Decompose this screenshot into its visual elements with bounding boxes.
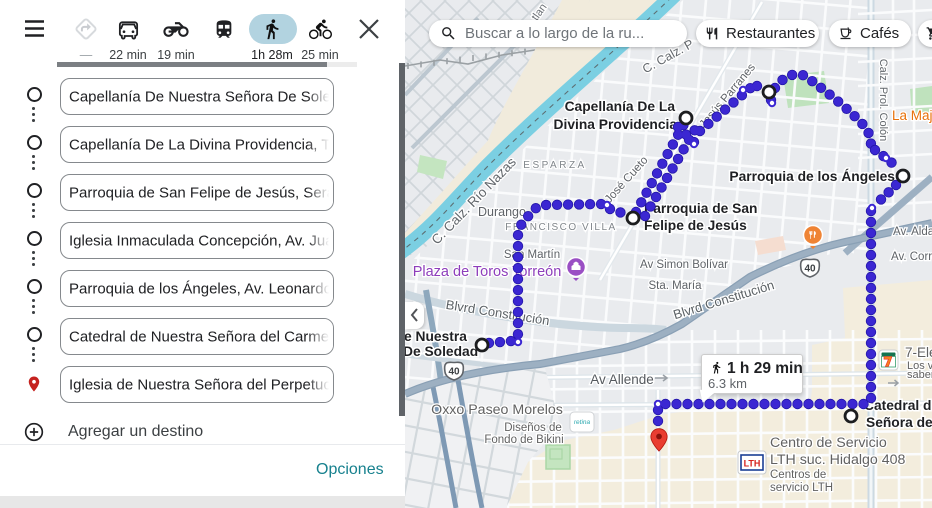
svg-text:Felipe de Jesús: Felipe de Jesús (644, 218, 747, 233)
svg-text:Centros de: Centros de (770, 469, 826, 481)
svg-text:Capellanía De La: Capellanía De La (565, 99, 676, 114)
svg-text:Divina Providencia: Divina Providencia (554, 117, 678, 132)
svg-text:Av Allende: Av Allende (590, 372, 654, 387)
svg-text:Diseños de: Diseños de (504, 422, 562, 434)
svg-text:La Maj: La Maj (892, 108, 932, 123)
svg-text:LTH: LTH (744, 459, 761, 469)
svg-text:Centro de Servicio: Centro de Servicio (770, 435, 887, 451)
svg-text:Durango: Durango (478, 205, 526, 219)
svg-text:7-Ele: 7-Ele (905, 345, 932, 360)
svg-text:De Soledad: De Soledad (405, 344, 478, 359)
svg-text:retina: retina (574, 419, 591, 426)
svg-text:40: 40 (448, 367, 460, 378)
svg-text:Parroquia de los Ángeles: Parroquia de los Ángeles (729, 168, 895, 184)
svg-text:40: 40 (804, 264, 816, 275)
svg-text:Sta. María: Sta. María (648, 280, 702, 292)
svg-text:ESPARZA: ESPARZA (523, 160, 586, 171)
svg-text:saber: saber (907, 369, 932, 381)
svg-text:servicio LTH: servicio LTH (770, 482, 833, 494)
svg-text:Parroquia de San: Parroquia de San (644, 201, 757, 216)
svg-text:Av. Aldan: Av. Aldan (893, 226, 932, 238)
svg-text:Señora del Ca: Señora del Ca (866, 415, 932, 430)
svg-text:Fondo de Bikini: Fondo de Bikini (484, 434, 563, 446)
svg-text:Oxxo Paseo Morelos: Oxxo Paseo Morelos (431, 402, 563, 418)
svg-text:LTH suc. Hidalgo 408: LTH suc. Hidalgo 408 (770, 452, 905, 468)
svg-text:San Martín: San Martín (504, 249, 560, 261)
svg-text:Av Simon Bolívar: Av Simon Bolívar (640, 259, 728, 271)
svg-text:Av. Corre: Av. Corre (891, 251, 932, 263)
svg-text:Plaza de Toros Torreón: Plaza de Toros Torreón (413, 264, 562, 280)
svg-text:e Nuestra: e Nuestra (405, 329, 467, 344)
svg-text:Calz. Prol. Colón: Calz. Prol. Colón (877, 59, 889, 142)
